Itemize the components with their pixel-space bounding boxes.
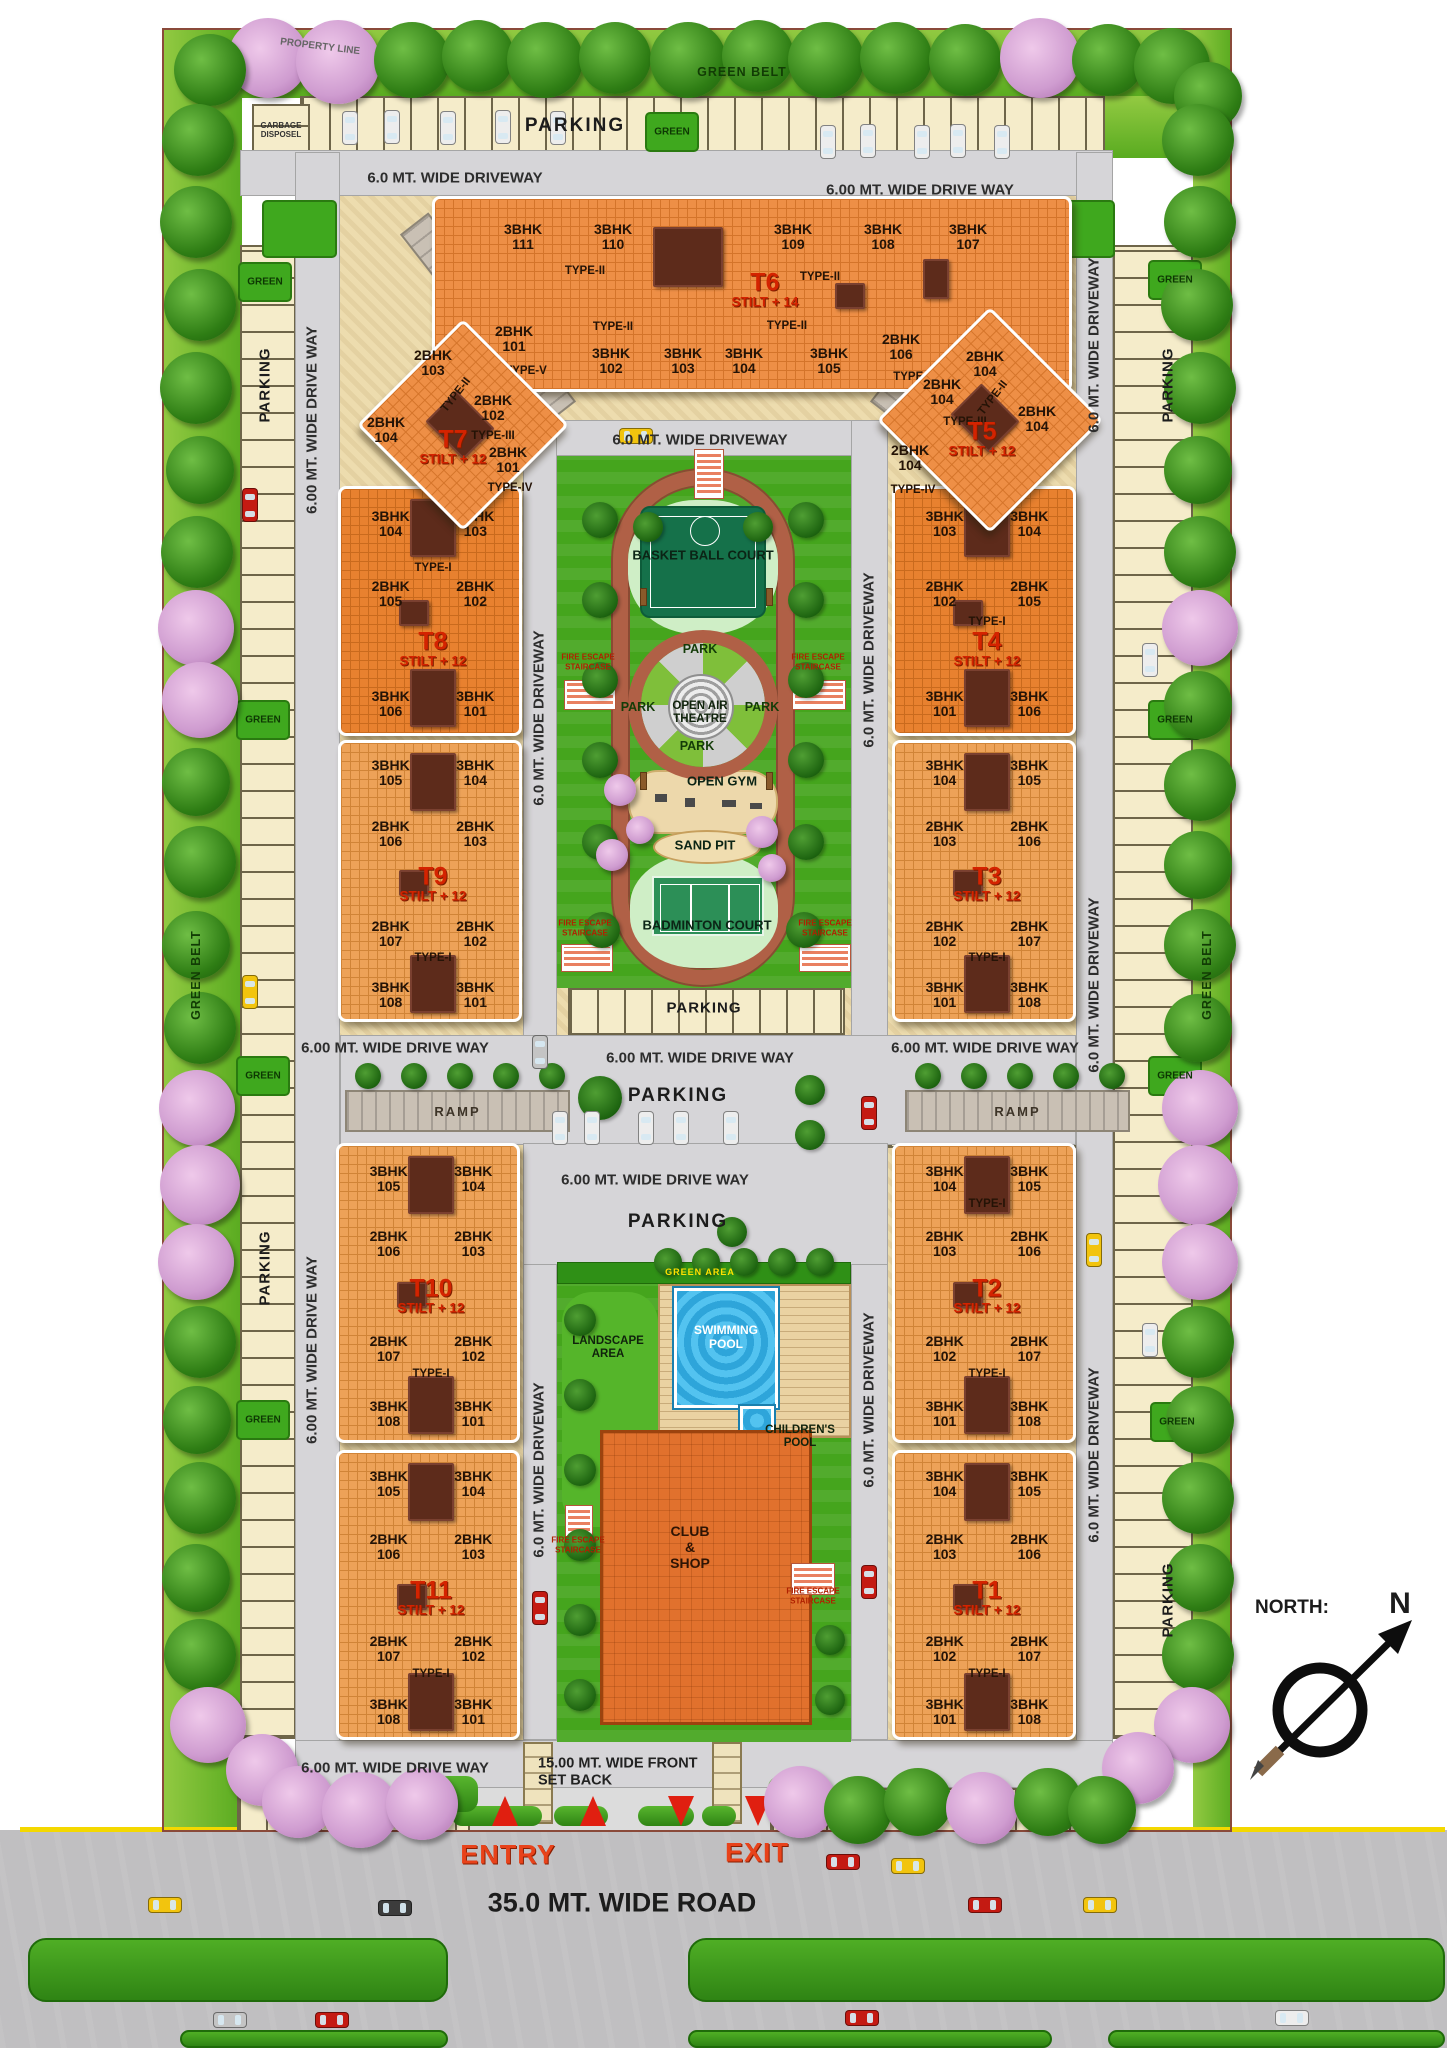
unit-type-label: TYPE-III <box>471 430 514 442</box>
tree-icon <box>164 1619 236 1691</box>
ramp-label: RAMP <box>994 1104 1040 1119</box>
car-icon <box>1142 1323 1158 1357</box>
tree-icon <box>1164 671 1232 739</box>
tree-icon <box>493 1063 519 1089</box>
parking-label: PARKING <box>525 115 625 137</box>
unit-label-t2: 2BHK 107 <box>1010 1333 1048 1363</box>
tower-name-t10: T10 <box>409 1277 452 1302</box>
driveway_a-label: 6.0 MT. WIDE DRIVEWAY <box>860 572 877 747</box>
car-window <box>1145 649 1155 655</box>
bench <box>766 588 773 606</box>
tree-icon <box>929 24 1001 96</box>
tree-icon <box>961 1063 987 1089</box>
driveway_a-label: 6.0 MT. WIDE DRIVEWAY <box>367 169 542 186</box>
tower-t9: 3BHK 1053BHK 1042BHK 1062BHK 103T9STILT … <box>338 740 522 1022</box>
roof-core <box>964 669 1010 727</box>
tree-icon <box>768 1248 796 1276</box>
unit-label-t3: 3BHK 101 <box>926 980 964 1010</box>
driveway_a-label: 6.0 MT. WIDE DRIVEWAY <box>1085 257 1102 432</box>
tree-icon <box>162 662 238 738</box>
exit-arrow-icon <box>668 1796 694 1826</box>
unit-label-t9: 3BHK 108 <box>372 980 410 1010</box>
front_setback-label: 15.00 MT. WIDE FRONT SET BACK <box>538 1755 758 1788</box>
tree-icon <box>447 1063 473 1089</box>
unit-label-t1: 3BHK 108 <box>1010 1697 1048 1727</box>
car-window <box>864 1119 874 1125</box>
park-label: PARK <box>745 700 780 714</box>
unit-label-t6: 3BHK 110 <box>594 222 632 252</box>
tree-icon <box>806 1248 834 1276</box>
green-label: GREEN <box>245 714 281 726</box>
car-window <box>867 2013 873 2023</box>
tree-icon <box>507 22 583 98</box>
gym-equipment-icon <box>655 794 667 802</box>
car-window <box>848 1857 854 1867</box>
car-icon <box>914 125 930 159</box>
tower-t1: 3BHK 1043BHK 1052BHK 1032BHK 106T1STILT … <box>892 1450 1076 1740</box>
roof-core <box>408 1463 454 1521</box>
bench <box>640 588 647 606</box>
green-label: GREEN <box>654 126 690 138</box>
tree-icon <box>174 34 246 106</box>
unit-label-t6: 3BHK 107 <box>949 222 987 252</box>
car-icon <box>673 1111 689 1145</box>
unit-label-t2: 3BHK 101 <box>926 1398 964 1428</box>
tree-icon <box>788 582 824 618</box>
tree-icon <box>1000 18 1080 98</box>
unit-type-label: TYPE-I <box>412 1368 449 1380</box>
unit-label-t6: 3BHK 105 <box>810 346 848 376</box>
car-window <box>443 134 453 140</box>
unit-type-label: TYPE-I <box>412 1668 449 1680</box>
tree-icon <box>815 1625 845 1655</box>
tower-name-t6: T6 <box>750 271 779 296</box>
parking-label: PARKING <box>256 347 273 422</box>
unit-label-t4: 2BHK 105 <box>1010 579 1048 609</box>
unit-label-t4: 2BHK 102 <box>926 579 964 609</box>
unit-label-t8: 2BHK 102 <box>456 579 494 609</box>
entry-arrow-icon <box>492 1796 518 1826</box>
tree-icon <box>788 742 824 778</box>
tree-icon <box>374 22 450 98</box>
car-window <box>953 147 963 153</box>
tree-icon <box>158 1224 234 1300</box>
car-window <box>535 1041 545 1047</box>
car-window <box>1088 1900 1094 1910</box>
unit-label-t4: 3BHK 101 <box>926 689 964 719</box>
car-icon <box>1083 1897 1117 1913</box>
park-label: PARK <box>683 642 718 656</box>
car-icon <box>213 2012 247 2028</box>
car-window <box>245 511 255 517</box>
car-icon <box>495 110 511 144</box>
tower-stilt-t3: STILT + 12 <box>954 889 1021 904</box>
tower-stilt-t2: STILT + 12 <box>954 1301 1021 1316</box>
unit-label-t11: 3BHK 104 <box>454 1469 492 1499</box>
tower-t7: 2BHK 103TYPE-II2BHK 102TYPE-III2BHK 1042… <box>358 338 573 523</box>
tree-icon <box>788 502 824 538</box>
club_shop-label: CLUB & SHOP <box>670 1523 710 1571</box>
entry-label: ENTRY <box>460 1839 556 1870</box>
car-icon <box>532 1035 548 1069</box>
car-window <box>535 1614 545 1620</box>
tree-icon <box>160 1145 240 1225</box>
tree-icon <box>1099 1063 1125 1089</box>
car-window <box>864 1102 874 1108</box>
tree-icon <box>582 582 618 618</box>
car-window <box>641 1134 651 1140</box>
tree-icon <box>743 512 773 542</box>
unit-type-label: TYPE-I <box>414 562 451 574</box>
unit-label-t11: 2BHK 106 <box>370 1532 408 1562</box>
tree-icon <box>164 826 236 898</box>
gym-equipment-icon <box>722 800 736 807</box>
tower-stilt-t9: STILT + 12 <box>400 889 467 904</box>
tree-icon <box>564 1454 596 1486</box>
roof-core <box>408 1156 454 1214</box>
car-window <box>917 131 927 137</box>
tower-stilt-t5: STILT + 12 <box>949 444 1016 459</box>
fire_escape_staircase-label: FIRE ESCAPE STAIRCASE <box>786 652 850 671</box>
tree-icon <box>1164 186 1236 258</box>
unit-label-t6: 3BHK 103 <box>664 346 702 376</box>
unit-label-t9: 3BHK 105 <box>372 758 410 788</box>
unit-label-t10: 3BHK 104 <box>454 1163 492 1193</box>
driveway-middle-center <box>523 1143 888 1265</box>
ramp-middle-left: RAMP <box>345 1090 570 1132</box>
driveway_a-label: 6.0 MT. WIDE DRIVEWAY <box>1085 897 1102 1072</box>
car-icon <box>242 488 258 522</box>
tree-icon <box>582 742 618 778</box>
bench <box>640 772 647 790</box>
unit-label-t7: 2BHK 104 <box>367 415 405 445</box>
tower-stilt-t1: STILT + 12 <box>954 1603 1021 1618</box>
green-label: GREEN <box>245 1414 281 1426</box>
unit-label-t2: 2BHK 106 <box>1010 1228 1048 1258</box>
car-icon <box>994 125 1010 159</box>
car-icon <box>342 111 358 145</box>
green_area-label: GREEN AREA <box>665 1267 735 1277</box>
car-icon <box>1142 643 1158 677</box>
unit-label-t9: 2BHK 107 <box>372 919 410 949</box>
unit-label-t8: 2BHK 105 <box>372 579 410 609</box>
tower-stilt-t6: STILT + 14 <box>732 295 799 310</box>
unit-type-label: TYPE-I <box>968 1368 1005 1380</box>
car-window <box>235 2015 241 2025</box>
car-icon <box>384 110 400 144</box>
car-window <box>726 1134 736 1140</box>
car-window <box>170 1900 176 1910</box>
tree-icon <box>386 1768 458 1840</box>
driveway_a-label: 6.0 MT. WIDE DRIVEWAY <box>612 431 787 448</box>
green-label: GREEN <box>1159 1416 1195 1428</box>
tree-icon <box>788 22 864 98</box>
unit-type-label: TYPE-IV <box>891 484 936 496</box>
unit-label-t11: 3BHK 105 <box>370 1469 408 1499</box>
road_35-label: 35.0 MT. WIDE ROAD <box>488 1887 757 1918</box>
parking-label: PARKING <box>666 999 741 1016</box>
road-median <box>1108 2030 1445 2048</box>
tree-icon <box>401 1063 427 1089</box>
tree-icon <box>626 816 654 844</box>
car-window <box>913 1861 919 1871</box>
car-window <box>587 1134 597 1140</box>
entry-arrow-icon <box>580 1796 606 1826</box>
car-window <box>997 131 1007 137</box>
car-window <box>850 2013 856 2023</box>
driveway_b-label: 6.00 MT. WIDE DRIVE WAY <box>303 326 320 514</box>
tree-icon <box>1068 1776 1136 1844</box>
car-icon <box>584 1111 600 1145</box>
unit-type-label: TYPE-II <box>565 265 605 277</box>
tree-icon <box>596 839 628 871</box>
car-window <box>1280 2013 1286 2023</box>
road-median <box>28 1938 448 2002</box>
car-window <box>1145 666 1155 672</box>
green-label: GREEN <box>245 1070 281 1082</box>
park-label: PARK <box>621 700 656 714</box>
car-window <box>831 1857 837 1867</box>
unit-label-t5: 2BHK 104 <box>1018 404 1056 434</box>
tree-icon <box>1164 994 1232 1062</box>
tree-icon <box>164 1306 236 1378</box>
car-window <box>153 1900 159 1910</box>
tree-icon <box>355 1063 381 1089</box>
unit-label-t2: 2BHK 102 <box>926 1333 964 1363</box>
unit-label-t11: 2BHK 107 <box>370 1634 408 1664</box>
tree-icon <box>758 854 786 882</box>
swimming_pool-label: SWIMMING POOL <box>694 1324 758 1352</box>
unit-label-t9: 2BHK 102 <box>456 919 494 949</box>
tower-name-t4: T4 <box>972 630 1001 655</box>
road-median <box>180 2030 448 2048</box>
unit-label-t10: 2BHK 102 <box>454 1333 492 1363</box>
roof-core <box>923 259 949 299</box>
car-icon <box>861 1565 877 1599</box>
unit-label-t5: 2BHK 104 <box>966 349 1004 379</box>
car-window <box>917 148 927 154</box>
tree-icon <box>633 512 663 542</box>
car-window <box>864 1571 874 1577</box>
unit-type-label: TYPE-I <box>968 1668 1005 1680</box>
tree-icon <box>158 590 234 666</box>
car-window <box>443 117 453 123</box>
fire-escape-staircase-box <box>562 945 612 971</box>
car-window <box>726 1117 736 1123</box>
tower-name-t1: T1 <box>972 1579 1001 1604</box>
unit-label-t8: 3BHK 101 <box>456 689 494 719</box>
parking-label: PARKING <box>1159 347 1176 422</box>
driveway_b-label: 6.00 MT. WIDE DRIVE WAY <box>301 1039 489 1056</box>
car-icon <box>891 1858 925 1874</box>
driveway_a-label: 6.0 MT. WIDE DRIVEWAY <box>860 1312 877 1487</box>
car-window <box>823 148 833 154</box>
car-window <box>863 130 873 136</box>
car-window <box>1297 2013 1303 2023</box>
car-window <box>245 981 255 987</box>
unit-label-t9: 3BHK 104 <box>456 758 494 788</box>
unit-type-label: TYPE-IV <box>488 482 533 494</box>
tower-stilt-t8: STILT + 12 <box>400 654 467 669</box>
car-window <box>345 134 355 140</box>
north-label: NORTH: <box>1255 1597 1329 1619</box>
tower-stilt-t10: STILT + 12 <box>398 1301 465 1316</box>
tree-icon <box>1162 1224 1238 1300</box>
driveway_a-label: 6.0 MT. WIDE DRIVEWAY <box>530 1382 547 1557</box>
car-window <box>555 1134 565 1140</box>
tree-icon <box>788 824 824 860</box>
tree-icon <box>164 1462 236 1534</box>
tree-icon <box>162 104 234 176</box>
site-master-plan: RAMPRAMPRAMPRAMP3BHK 1043BHK 1032BHK 105… <box>0 0 1447 2048</box>
roof-core <box>408 1673 454 1731</box>
unit-label-t3: 3BHK 105 <box>1010 758 1048 788</box>
car-icon <box>860 124 876 158</box>
open_gym-label: OPEN GYM <box>687 775 757 790</box>
tower-t5: 2BHK 104TYPE-II2BHK 104TYPE-III2BHK 1042… <box>865 330 1115 525</box>
unit-type-label: TYPE-I <box>968 616 1005 628</box>
tree-icon <box>915 1063 941 1089</box>
unit-label-t10: 2BHK 107 <box>370 1333 408 1363</box>
driveway_a-label: 6.0 MT. WIDE DRIVEWAY <box>530 630 547 805</box>
tower-name-t11: T11 <box>410 1579 452 1604</box>
exit-label: EXIT <box>725 1837 789 1868</box>
car-window <box>953 130 963 136</box>
fire-escape-staircase-box <box>695 450 723 498</box>
tree-icon <box>160 352 232 424</box>
tree-icon <box>815 1685 845 1715</box>
road-median <box>688 2030 1052 2048</box>
car-window <box>383 1903 389 1913</box>
tree-icon <box>166 436 234 504</box>
unit-type-label: TYPE-I <box>414 952 451 964</box>
tree-icon <box>160 186 232 258</box>
tower-stilt-t4: STILT + 12 <box>954 654 1021 669</box>
car-window <box>387 133 397 139</box>
car-window <box>498 116 508 122</box>
unit-type-label: TYPE-II <box>800 271 840 283</box>
tree-icon <box>1162 1462 1234 1534</box>
unit-label-t6: 3BHK 111 <box>504 222 542 252</box>
unit-label-t11: 3BHK 108 <box>370 1697 408 1727</box>
tree-icon <box>442 20 514 92</box>
unit-label-t8: 3BHK 106 <box>372 689 410 719</box>
car-window <box>676 1117 686 1123</box>
tree-icon <box>1053 1063 1079 1089</box>
unit-label-t10: 3BHK 105 <box>370 1163 408 1193</box>
unit-label-t5: 2BHK 104 <box>923 377 961 407</box>
unit-label-t3: 2BHK 102 <box>926 919 964 949</box>
gym-equipment-icon <box>750 803 762 809</box>
roof-core <box>835 283 865 309</box>
tree-icon <box>795 1120 825 1150</box>
car-icon <box>242 975 258 1009</box>
unit-label-t7: 2BHK 101 <box>489 445 527 475</box>
tree-icon <box>1158 1145 1238 1225</box>
parking-label: PARKING <box>1159 1562 1176 1637</box>
landscape_area-label: LANDSCAPE AREA <box>572 1335 644 1361</box>
unit-label-t10: 3BHK 101 <box>454 1398 492 1428</box>
car-window <box>387 116 397 122</box>
hedge <box>702 1806 736 1826</box>
unit-label-t9: 3BHK 101 <box>456 980 494 1010</box>
car-icon <box>552 1111 568 1145</box>
car-window <box>245 494 255 500</box>
childrens_pool-label: CHILDREN'S POOL <box>765 1424 835 1450</box>
tree-icon <box>564 1679 596 1711</box>
unit-type-label: TYPE-I <box>968 1198 1005 1210</box>
tower-name-t9: T9 <box>418 865 447 890</box>
green-label: GREEN <box>247 276 283 288</box>
sand_pit-label: SAND PIT <box>675 839 736 854</box>
car-window <box>1145 1329 1155 1335</box>
car-window <box>676 1134 686 1140</box>
unit-label-t9: 2BHK 103 <box>456 819 494 849</box>
roof-core <box>410 669 456 727</box>
car-icon <box>845 2010 879 2026</box>
car-icon <box>378 1900 412 1916</box>
unit-label-t10: 3BHK 108 <box>370 1398 408 1428</box>
tree-icon <box>1162 590 1238 666</box>
tree-icon <box>746 816 778 848</box>
tree-icon <box>860 22 932 94</box>
parking-row-top <box>300 96 1105 152</box>
roof-core <box>964 753 1010 811</box>
unit-label-t3: 3BHK 104 <box>926 758 964 788</box>
open_air_theatre-label: OPEN AIR THEATRE <box>672 700 727 726</box>
fire_escape_staircase-label: FIRE ESCAPE STAIRCASE <box>546 1535 610 1554</box>
driveway_b-label: 6.00 MT. WIDE DRIVE WAY <box>561 1171 749 1188</box>
fire-escape-staircase-box <box>800 945 850 971</box>
parking-label: PARKING <box>628 1085 728 1107</box>
car-window <box>896 1861 902 1871</box>
green-label: GREEN <box>1157 1070 1193 1082</box>
tree-icon <box>163 1386 231 1454</box>
car-window <box>320 2015 326 2025</box>
tree-icon <box>1007 1063 1033 1089</box>
tree-icon <box>582 502 618 538</box>
green_belt-label: GREEN BELT <box>697 65 787 79</box>
unit-label-t10: 2BHK 106 <box>370 1228 408 1258</box>
unit-label-t1: 3BHK 105 <box>1010 1469 1048 1499</box>
roof-core <box>964 1463 1010 1521</box>
unit-type-label: TYPE-II <box>767 320 807 332</box>
fire_escape_staircase-label: FIRE ESCAPE STAIRCASE <box>553 918 617 937</box>
tree-icon <box>824 1776 892 1844</box>
car-icon <box>723 1111 739 1145</box>
unit-type-label: TYPE-II <box>593 321 633 333</box>
roof-core <box>653 227 723 287</box>
tree-icon <box>795 1075 825 1105</box>
car-window <box>245 998 255 1004</box>
car-window <box>823 131 833 137</box>
unit-label-t11: 2BHK 102 <box>454 1634 492 1664</box>
roof-core <box>964 1673 1010 1731</box>
tree-icon <box>159 1070 235 1146</box>
car-window <box>337 2015 343 2025</box>
tree-icon <box>884 1768 952 1836</box>
roof-core <box>408 1376 454 1434</box>
park-label: PARK <box>680 739 715 753</box>
unit-label-t1: 2BHK 106 <box>1010 1532 1048 1562</box>
car-window <box>1145 1346 1155 1352</box>
tower-t10: 3BHK 1053BHK 1042BHK 1062BHK 103T10STILT… <box>336 1143 520 1443</box>
tree-icon <box>164 269 236 341</box>
car-icon <box>440 111 456 145</box>
car-window <box>345 117 355 123</box>
car-window <box>535 1597 545 1603</box>
court-arc <box>690 516 720 546</box>
